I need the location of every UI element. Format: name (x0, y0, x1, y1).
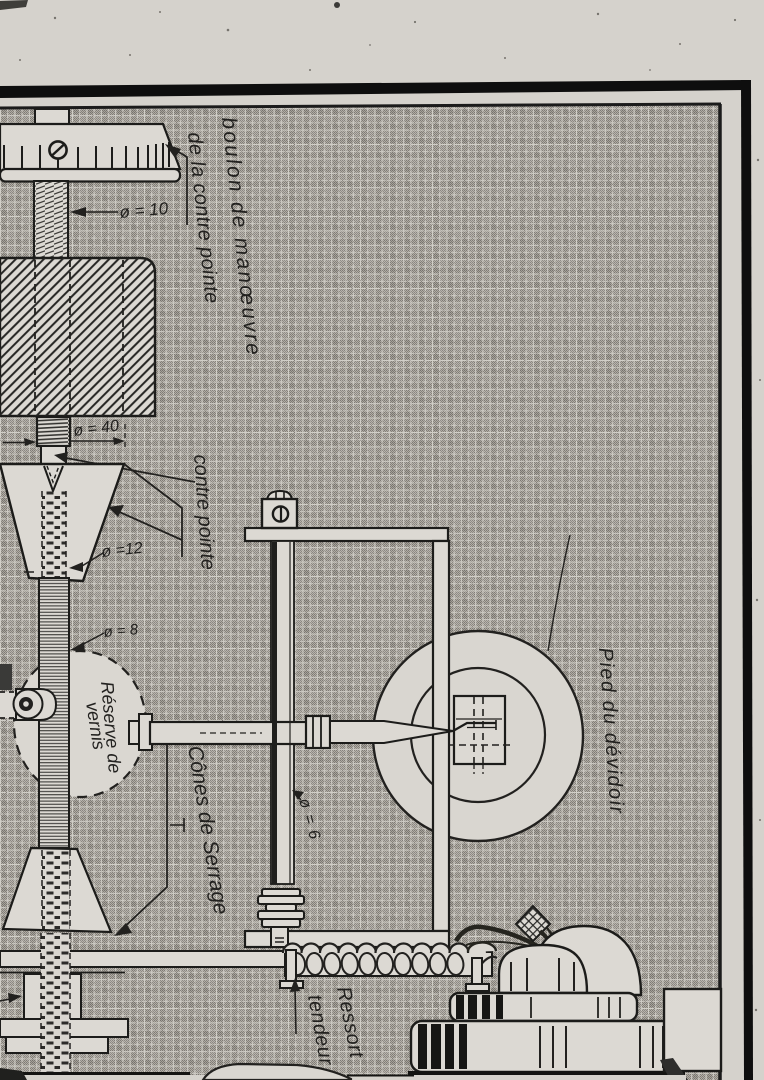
svg-text:ø = 8: ø = 8 (103, 621, 140, 641)
